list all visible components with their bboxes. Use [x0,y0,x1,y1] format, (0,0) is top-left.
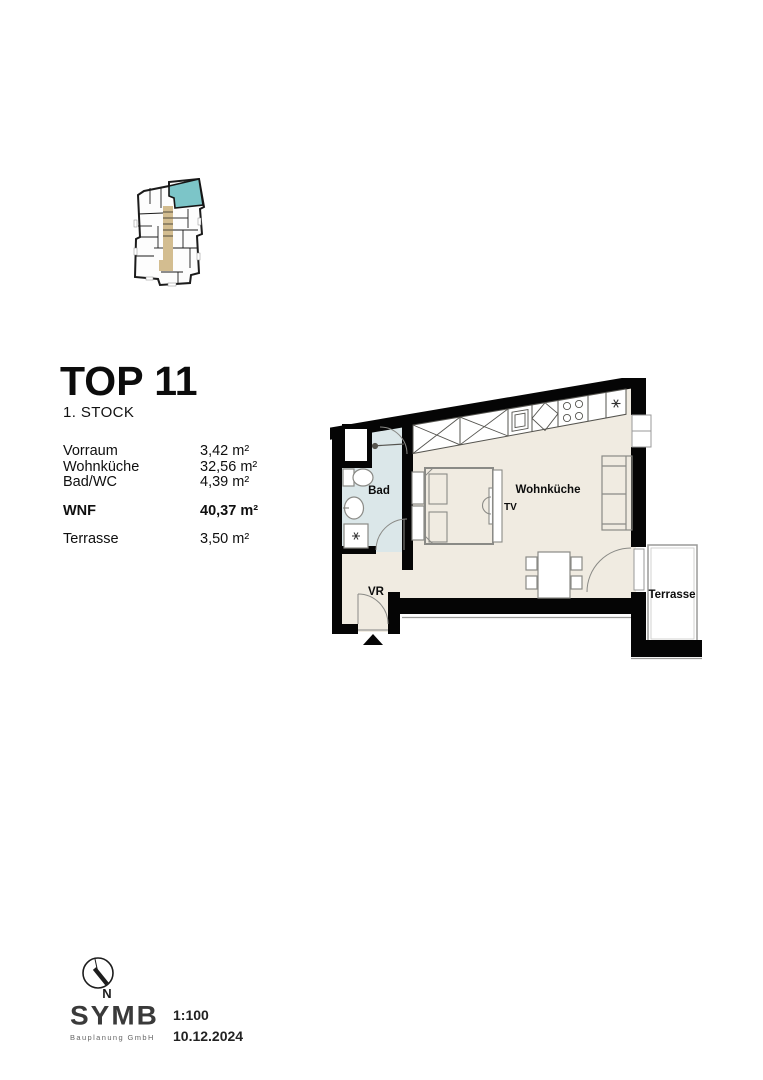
area-table: Vorraum 3,42 m² Wohnküche 32,56 m² Bad/W… [63,444,293,548]
room-label-terrasse: Terrasse [648,589,695,601]
room-size: 3,42 m² [200,444,249,460]
page-title: TOP 11 [60,358,198,405]
room-name: Bad/WC [63,475,200,491]
room-label-bad: Bad [368,485,390,497]
headboard-cabinet-icon [412,472,424,540]
shaft [345,429,367,461]
tv-label: TV [504,502,517,513]
logo-subtitle: Bauplanung GmbH [70,1033,159,1042]
total-label: WNF [63,504,200,520]
entrance-arrow-icon [363,634,383,645]
area-row: Vorraum 3,42 m² [63,444,293,460]
room-name: Vorraum [63,444,200,460]
washing-machine-icon [344,524,368,548]
floor-label: 1. STOCK [63,404,134,421]
floorplan-drawing: Bad VR Wohnküche Terrasse TV [330,378,705,668]
terrace-size: 3,50 m² [200,532,249,548]
area-row: Bad/WC 4,39 m² [63,475,293,491]
logo-wordmark: SYMB [70,1001,159,1031]
room-label-wohnkueche: Wohnküche [516,484,581,496]
window-icon [632,415,651,447]
room-name: Wohnküche [63,460,200,476]
north-label: N [102,986,111,1001]
overview-map [128,178,216,293]
room-size: 32,56 m² [200,460,257,476]
area-row: Wohnküche 32,56 m² [63,460,293,476]
total-size: 40,37 m² [200,504,258,520]
terrace-label: Terrasse [63,532,200,548]
plan-meta: 1:100 10.12.2024 [173,1005,243,1047]
room-size: 4,39 m² [200,475,249,491]
area-terrace-row: Terrasse 3,50 m² [63,532,293,548]
terrace-door-leaf [634,549,644,590]
area-total-row: WNF 40,37 m² [63,504,293,520]
scale-value: 1:100 [173,1005,243,1026]
toilet-icon [343,469,373,486]
room-label-vr: VR [368,586,385,598]
date-value: 10.12.2024 [173,1026,243,1047]
plan-sheet: TOP 11 1. STOCK Vorraum 3,42 m² Wohnküch… [0,0,763,1080]
company-logo: SYMB Bauplanung GmbH [70,1000,159,1042]
